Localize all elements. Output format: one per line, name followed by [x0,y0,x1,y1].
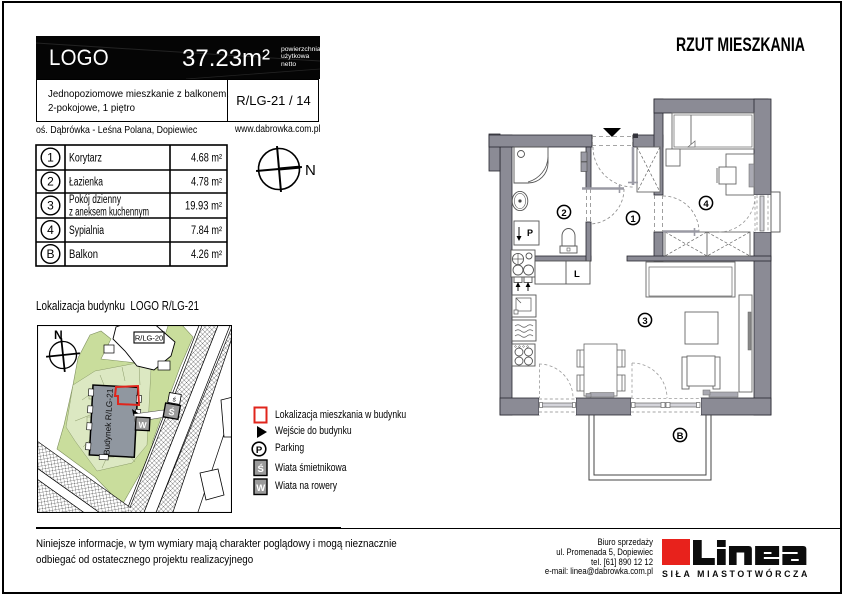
svg-text:B: B [46,247,54,261]
svg-text:1: 1 [47,151,54,165]
svg-text:7.84 m²: 7.84 m² [191,225,222,237]
svg-text:W: W [256,483,265,494]
svg-text:4.26 m²: 4.26 m² [191,249,222,261]
svg-text:1: 1 [630,214,636,225]
svg-text:R/LG-20: R/LG-20 [135,334,163,343]
svg-text:B: B [677,431,684,442]
svg-text:Pokój dzienny: Pokój dzienny [69,194,121,206]
svg-text:SIŁA MIASTOTWÓRCZA: SIŁA MIASTOTWÓRCZA [662,568,810,579]
svg-text:Sypialnia: Sypialnia [69,225,104,237]
svg-text:3: 3 [642,316,647,327]
svg-text:Balkon: Balkon [69,249,98,261]
svg-text:W: W [138,420,148,430]
svg-text:Łazienka: Łazienka [69,177,103,189]
svg-text:z aneksem kuchennym: z aneksem kuchennym [69,207,149,219]
svg-text:3: 3 [47,199,54,213]
svg-text:4.68 m²: 4.68 m² [191,153,222,165]
svg-text:Ś: Ś [258,463,264,475]
svg-text:N: N [305,162,316,179]
svg-text:2: 2 [561,208,566,219]
svg-text:4: 4 [703,199,709,210]
svg-text:P: P [527,228,533,238]
svg-text:Korytarz: Korytarz [69,153,102,165]
svg-text:4: 4 [47,223,54,237]
svg-text:2: 2 [47,175,54,189]
svg-text:L: L [574,269,580,280]
svg-text:19.93 m²: 19.93 m² [185,201,222,213]
svg-text:P: P [256,445,263,456]
svg-text:4.78 m²: 4.78 m² [191,177,222,189]
